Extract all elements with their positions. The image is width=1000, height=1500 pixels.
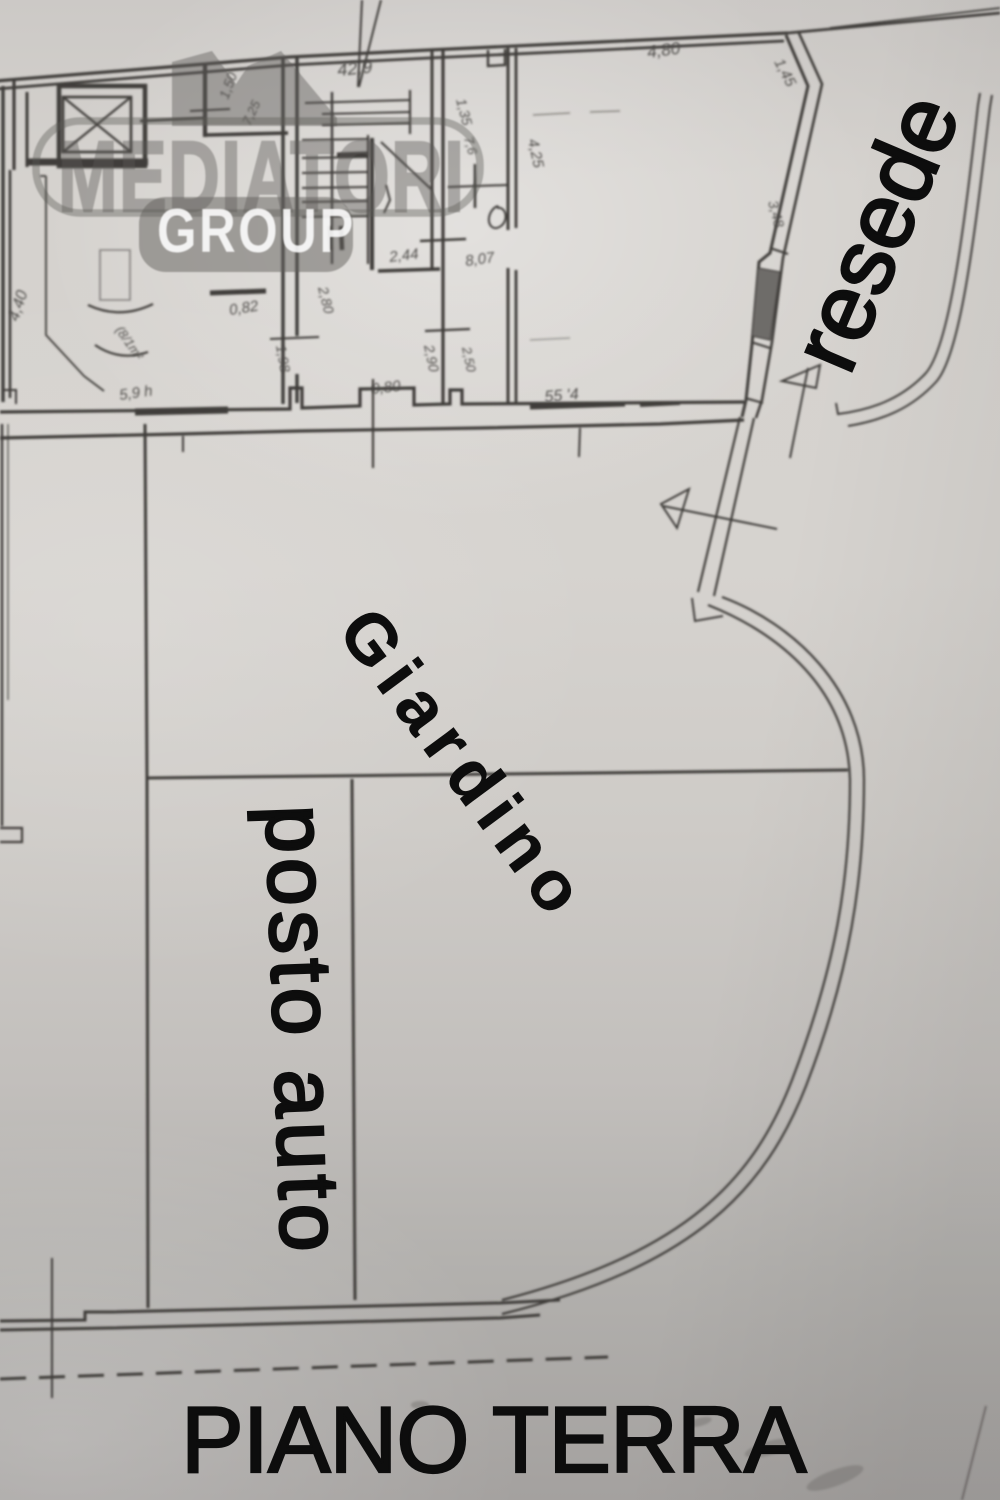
svg-text:PIANO TERRA: PIANO TERRA	[181, 1387, 807, 1492]
svg-text:posto auto: posto auto	[247, 803, 359, 1258]
svg-text:Giardino: Giardino	[324, 594, 605, 936]
svg-text:resede: resede	[771, 79, 980, 385]
